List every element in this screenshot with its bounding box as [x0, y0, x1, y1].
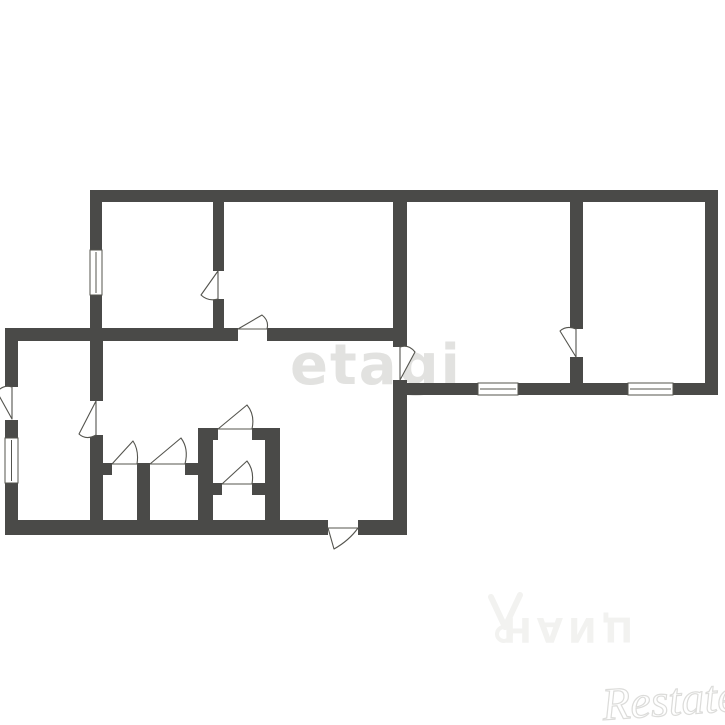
- door-swing: [201, 271, 218, 300]
- door-opening: [218, 428, 252, 440]
- wall-segment: [5, 328, 393, 341]
- door-swing: [112, 441, 138, 464]
- door-swing: [328, 528, 358, 549]
- watermark-restate: Restate: [599, 670, 725, 725]
- wall-segment: [393, 380, 407, 535]
- wall-segment: [5, 328, 18, 535]
- door-swing: [238, 315, 268, 329]
- wall-segment: [265, 428, 280, 521]
- floorplan-image: etagi ЦИАН Restate: [0, 0, 725, 725]
- door-opening: [112, 463, 137, 475]
- wall-segment: [90, 190, 718, 202]
- floor-plan: etagi ЦИАН Restate: [0, 0, 725, 725]
- watermark-cian: ЦИАН: [491, 595, 633, 649]
- wall-segment: [393, 202, 407, 347]
- wall-segment: [137, 475, 150, 521]
- wall-segment: [198, 428, 213, 521]
- watermark-cian-text: ЦИАН: [498, 609, 633, 649]
- door-opening: [222, 483, 252, 495]
- door-opening: [150, 463, 185, 475]
- door-swing: [222, 461, 253, 484]
- door-opening: [238, 328, 267, 341]
- door-swing: [150, 438, 186, 464]
- door-swing: [79, 401, 96, 438]
- door-swing: [218, 405, 253, 429]
- door-swing: [560, 327, 576, 357]
- wall-segment: [570, 202, 583, 385]
- wall-segment: [705, 190, 718, 395]
- wall-segment: [213, 202, 224, 328]
